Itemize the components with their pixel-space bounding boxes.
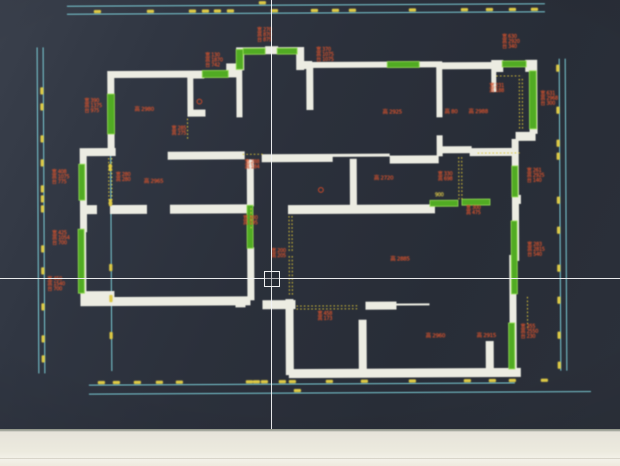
dim-tick [42,355,45,362]
floorplan-svg [0,0,620,430]
dim-tick [42,335,45,342]
dim-tick [557,140,560,147]
dim-tick [94,10,101,13]
dim-tick [531,8,538,11]
dim-tick [409,8,416,11]
dim-tick [261,380,268,383]
dim-tick [253,380,260,383]
dim-tick [509,379,516,382]
dim-tick [541,379,548,382]
window-note: 宽 631高 2968台 300 [540,92,558,107]
dim-tick [156,381,163,384]
dim-tick [259,1,266,4]
window-note: 宽 355高 2550台 230 [521,325,539,340]
dim-tick [461,8,468,11]
room-note: 高 2885 [390,257,409,262]
beam-note: 宽 330高 698 [438,172,453,182]
window-note: 宽 283高 2815台 540 [527,243,545,258]
dim-tick [486,8,493,11]
cad-drawing-layer: 宽 270高 870台 875宽 130高 1870台 742宽 370高 10… [0,0,620,430]
dim-tick [227,9,234,12]
wall-note: 900 [435,193,444,198]
dim-tick [557,227,560,234]
dim-tick [41,185,44,192]
dim-tick [311,9,318,12]
room-note: 高 2915 [477,334,496,339]
dim-tick [332,9,339,12]
beam-note: 宽 288高 184 [245,160,260,170]
window-note: 宽 408高 1075台 775 [52,170,70,185]
dim-tick [409,379,416,382]
beam-note: 宽 300高 195 [243,216,258,226]
dim-tick [109,295,112,302]
window-note: 宽 390高 1375台 975 [84,99,102,114]
room-note: 高 2720 [374,177,393,182]
dim-tick [41,303,44,310]
window-note: 宽 425高 1054台 700 [52,231,70,246]
dim-tick [98,381,105,384]
dim-tick [464,379,471,382]
monitor-photo: 宽 270高 870台 875宽 130高 1870台 742宽 370高 10… [0,0,620,466]
dim-tick [41,135,44,142]
window-note: 宽 130高 1870台 742 [205,53,223,68]
dim-tick [489,379,496,382]
dim-tick [41,159,44,166]
room-note: 高 80 [444,110,457,115]
dim-tick [41,195,44,202]
window-note: 宽 370高 1075台 1075 [316,48,334,63]
room-note: 高 2980 [134,108,153,113]
dim-tick [557,197,560,204]
dim-tick [147,10,154,13]
beam-note: 宽 300高 475 [466,206,481,216]
dim-tick [176,381,183,384]
dim-tick [294,389,301,392]
window-note: 宽 450高 1540台 700 [47,277,65,292]
dim-tick [556,107,559,114]
dim-tick [214,9,221,12]
dim-tick [189,10,196,13]
crosshair-horizontal [0,278,620,279]
dim-tick [361,380,368,383]
dim-tick [109,164,112,171]
dim-tick [557,153,560,160]
cursor-pickbox [264,271,280,287]
room-note: 高 2960 [426,334,445,339]
dim-tick [289,380,296,383]
dim-tick [41,245,44,252]
dim-tick [558,362,561,369]
beam-note: 宽 285高 275 [172,127,187,137]
dim-tick [202,10,209,13]
dim-tick [40,87,43,94]
dim-tick [279,380,286,383]
dim-tick [349,9,356,12]
dim-tick [109,199,112,206]
monitor-bezel [0,429,620,466]
dim-tick [557,297,560,304]
dim-tick [40,103,43,110]
dim-tick [110,332,113,339]
window-note: 宽 261高 2925台 140 [527,169,545,184]
beam-note: 宽 280高 280 [116,173,131,183]
beam-note: 宽 458高 173 [318,312,333,322]
dim-tick [246,380,253,383]
symbol-circles [197,99,323,193]
dim-tick [41,205,44,212]
dim-tick [134,381,141,384]
dim-tick [509,8,516,11]
dim-tick [556,65,559,72]
dim-tick [113,381,120,384]
cad-viewport[interactable]: 宽 270高 870台 875宽 130高 1870台 742宽 370高 10… [0,0,620,430]
window-note: 宽 630高 2920台 340 [502,35,520,50]
dim-tick [41,267,44,274]
dim-tick [557,265,560,272]
beam-note: 宽 200高 205 [271,249,286,259]
crosshair-vertical [271,0,272,430]
room-note: 高 2965 [144,180,163,185]
window-note: 宽 270高 870台 875 [257,28,272,43]
dim-tick [558,332,561,339]
beam-note: 宽 231高 188 [489,84,504,94]
dim-tick [326,380,333,383]
room-note: 高 2988 [468,110,487,115]
room-note: 高 2925 [382,111,401,116]
dim-tick [109,264,112,271]
